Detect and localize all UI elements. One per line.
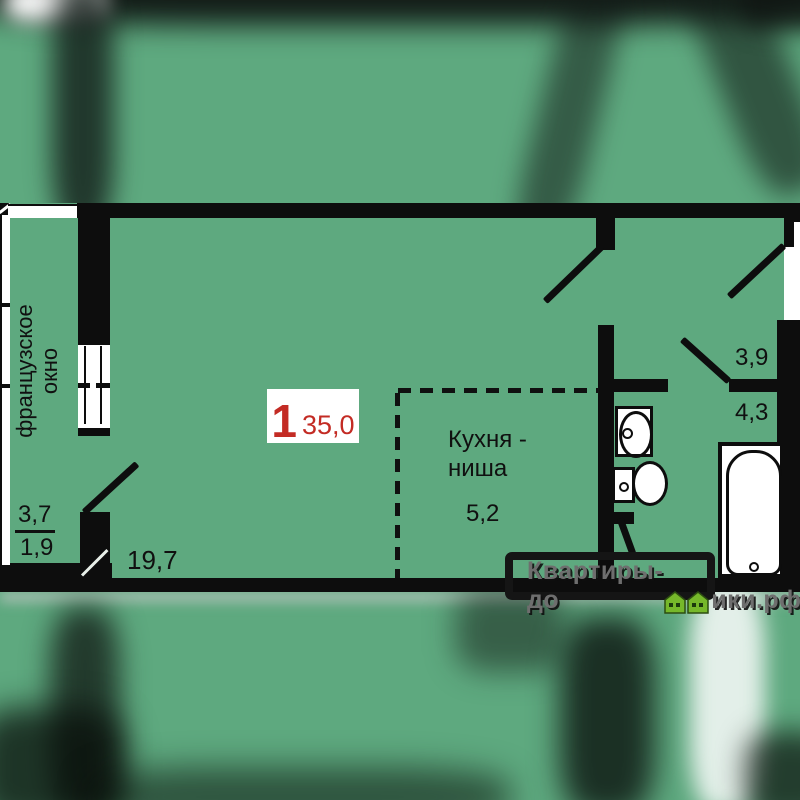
watermark-text-right: ики.рф [711,586,800,615]
watermark-text-left: Квартиры-до [527,557,663,615]
kitchen-niche-label: Кухня - ниша 5,2 [448,425,527,528]
unit-area-badge: 1 35,0 [267,389,359,443]
balcony-area-total: 3,7 [15,501,55,529]
wall-top [77,203,800,218]
kitchen-label-line2: ниша [448,454,527,483]
total-area-label: 35,0 [302,412,355,438]
window-mid-tick [78,383,90,388]
balcony-label-line2: окно [37,271,62,471]
balcony-label-line1: французское [12,271,37,471]
floor-plan-image: 1 35,0 французское окно 3,7 1,9 19,7 Кух… [0,0,800,800]
sink [615,406,653,457]
toilet-flush [619,482,629,492]
entrance-door-opening [784,247,800,321]
fraction-bar [15,530,55,533]
wall-room-bath [598,325,614,578]
entrance-door-swing [727,243,787,299]
bathroom-door-swing [680,337,732,384]
watermark: Квартиры-до ики.рф [527,557,800,615]
wall-balcony-room-upper [78,215,110,340]
window-mid-tick [96,383,110,388]
balcony-glazing-top [8,204,77,218]
room-hall-door-swing [543,244,605,304]
bathroom-area-label: 4,3 [735,399,768,427]
unit-number: 1 [271,399,297,443]
balcony-area-reduced: 1,9 [15,534,55,562]
toilet-bowl [632,461,668,506]
glazing-tick [0,303,10,307]
floor-plan: 1 35,0 французское окно 3,7 1,9 19,7 Кух… [0,0,800,800]
kitchen-label-line1: Кухня - [448,425,527,454]
sink-faucet [622,428,633,439]
balcony-label: французское окно [12,271,64,471]
house-icon [664,590,710,614]
living-room-area-label: 19,7 [127,545,178,576]
balcony-glazing-left [0,213,10,565]
glazing-tick [0,384,10,388]
wall-hall-bath-left [598,379,668,392]
wall-hall-bath-right [729,379,800,392]
kitchen-niche-dashed-boundary [398,388,599,393]
balcony-area-fraction: 3,7 1,9 [15,501,55,562]
balcony-door-swing [82,461,140,515]
kitchen-area-label: 5,2 [448,499,527,528]
window-cap [78,337,110,345]
window-cap [78,428,110,436]
kitchen-niche-dashed-boundary [395,393,400,578]
entrance-door-opening [794,222,800,247]
hall-area-label: 3,9 [735,344,768,372]
